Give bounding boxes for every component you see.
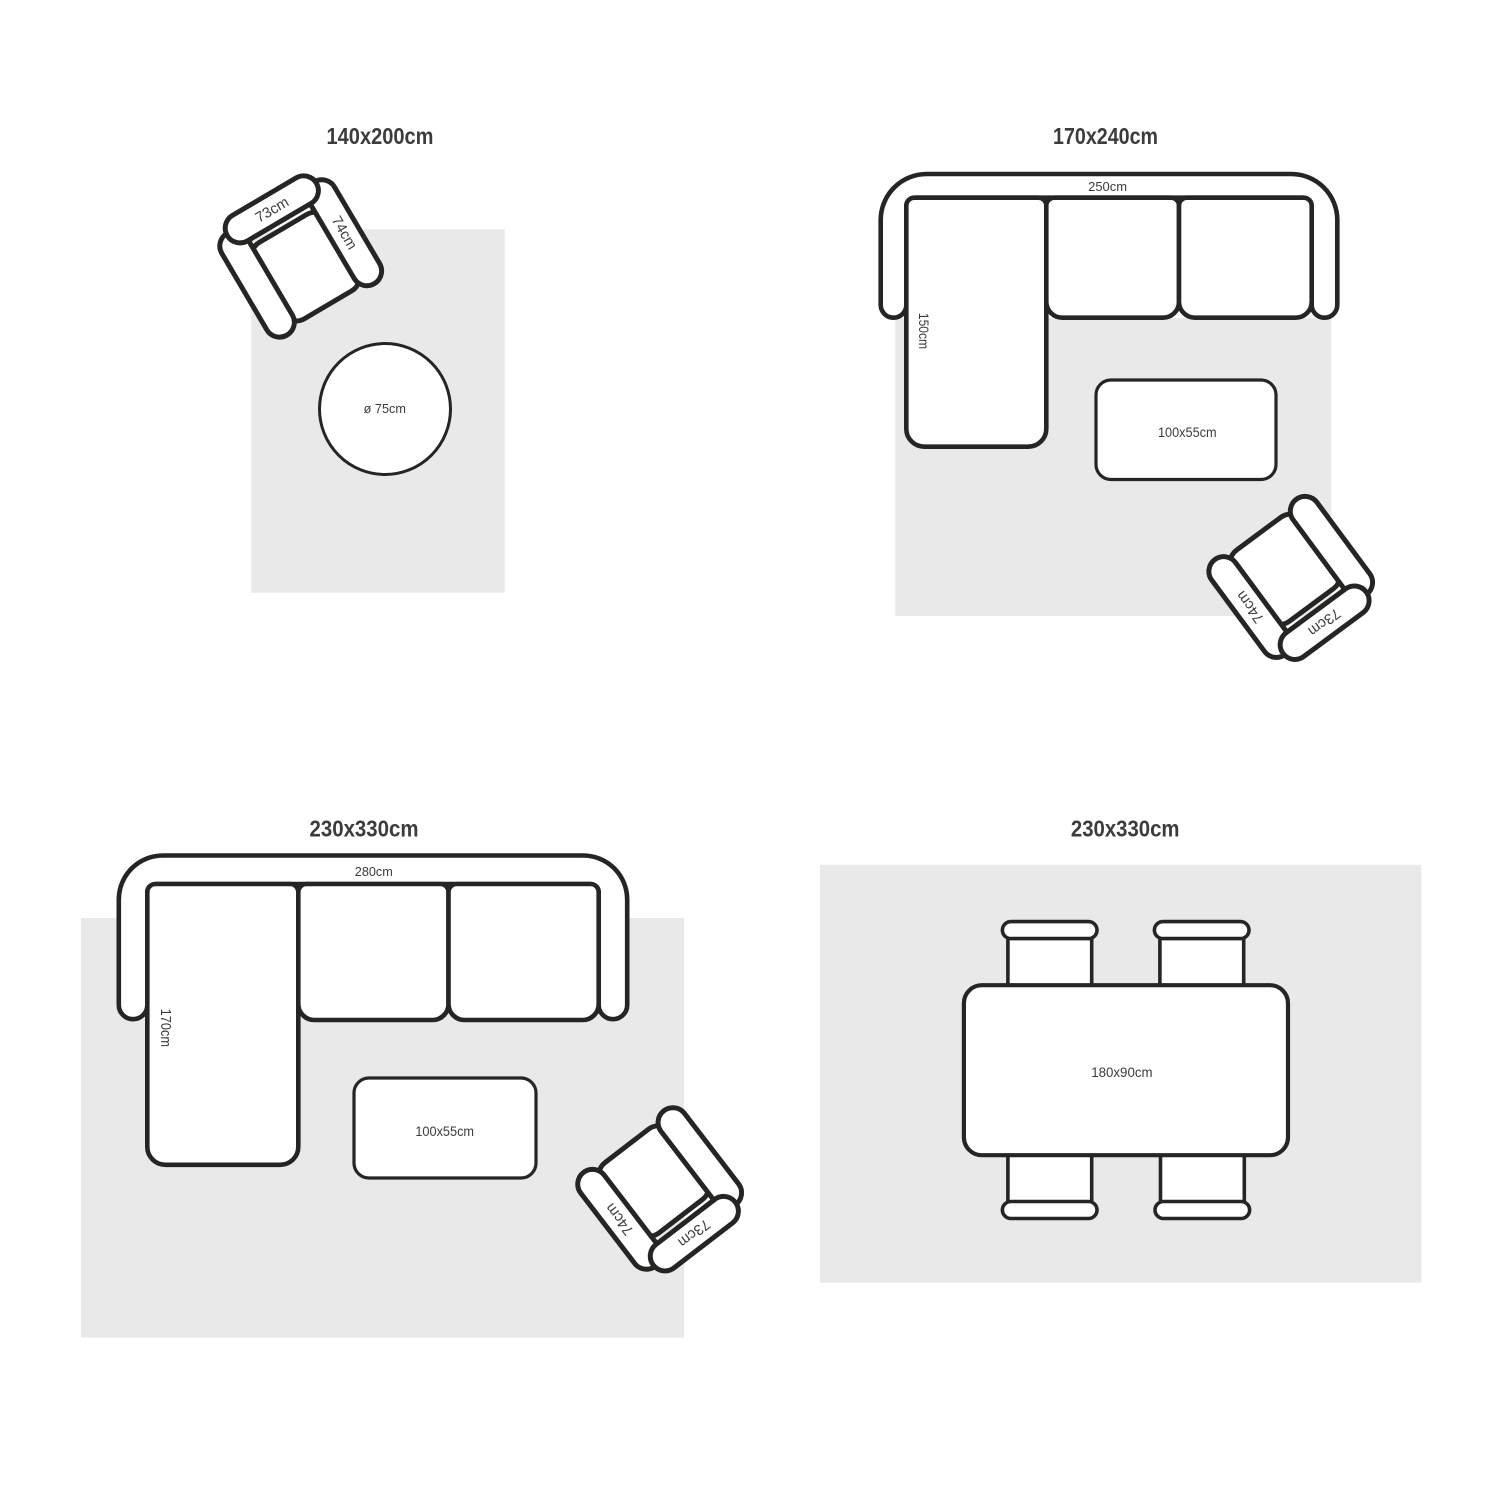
svg-text:ø 75cm: ø 75cm	[364, 401, 406, 416]
svg-text:170x240cm: 170x240cm	[1053, 123, 1158, 149]
svg-text:250cm: 250cm	[1088, 179, 1127, 194]
svg-text:100x55cm: 100x55cm	[415, 1124, 474, 1139]
svg-text:150cm: 150cm	[916, 313, 932, 349]
svg-text:170cm: 170cm	[157, 1009, 174, 1047]
svg-text:230x330cm: 230x330cm	[310, 816, 419, 842]
svg-text:140x200cm: 140x200cm	[327, 123, 434, 149]
svg-text:180x90cm: 180x90cm	[1091, 1065, 1152, 1080]
svg-text:230x330cm: 230x330cm	[1071, 816, 1180, 842]
svg-text:100x55cm: 100x55cm	[1158, 425, 1217, 440]
svg-text:280cm: 280cm	[355, 864, 393, 879]
